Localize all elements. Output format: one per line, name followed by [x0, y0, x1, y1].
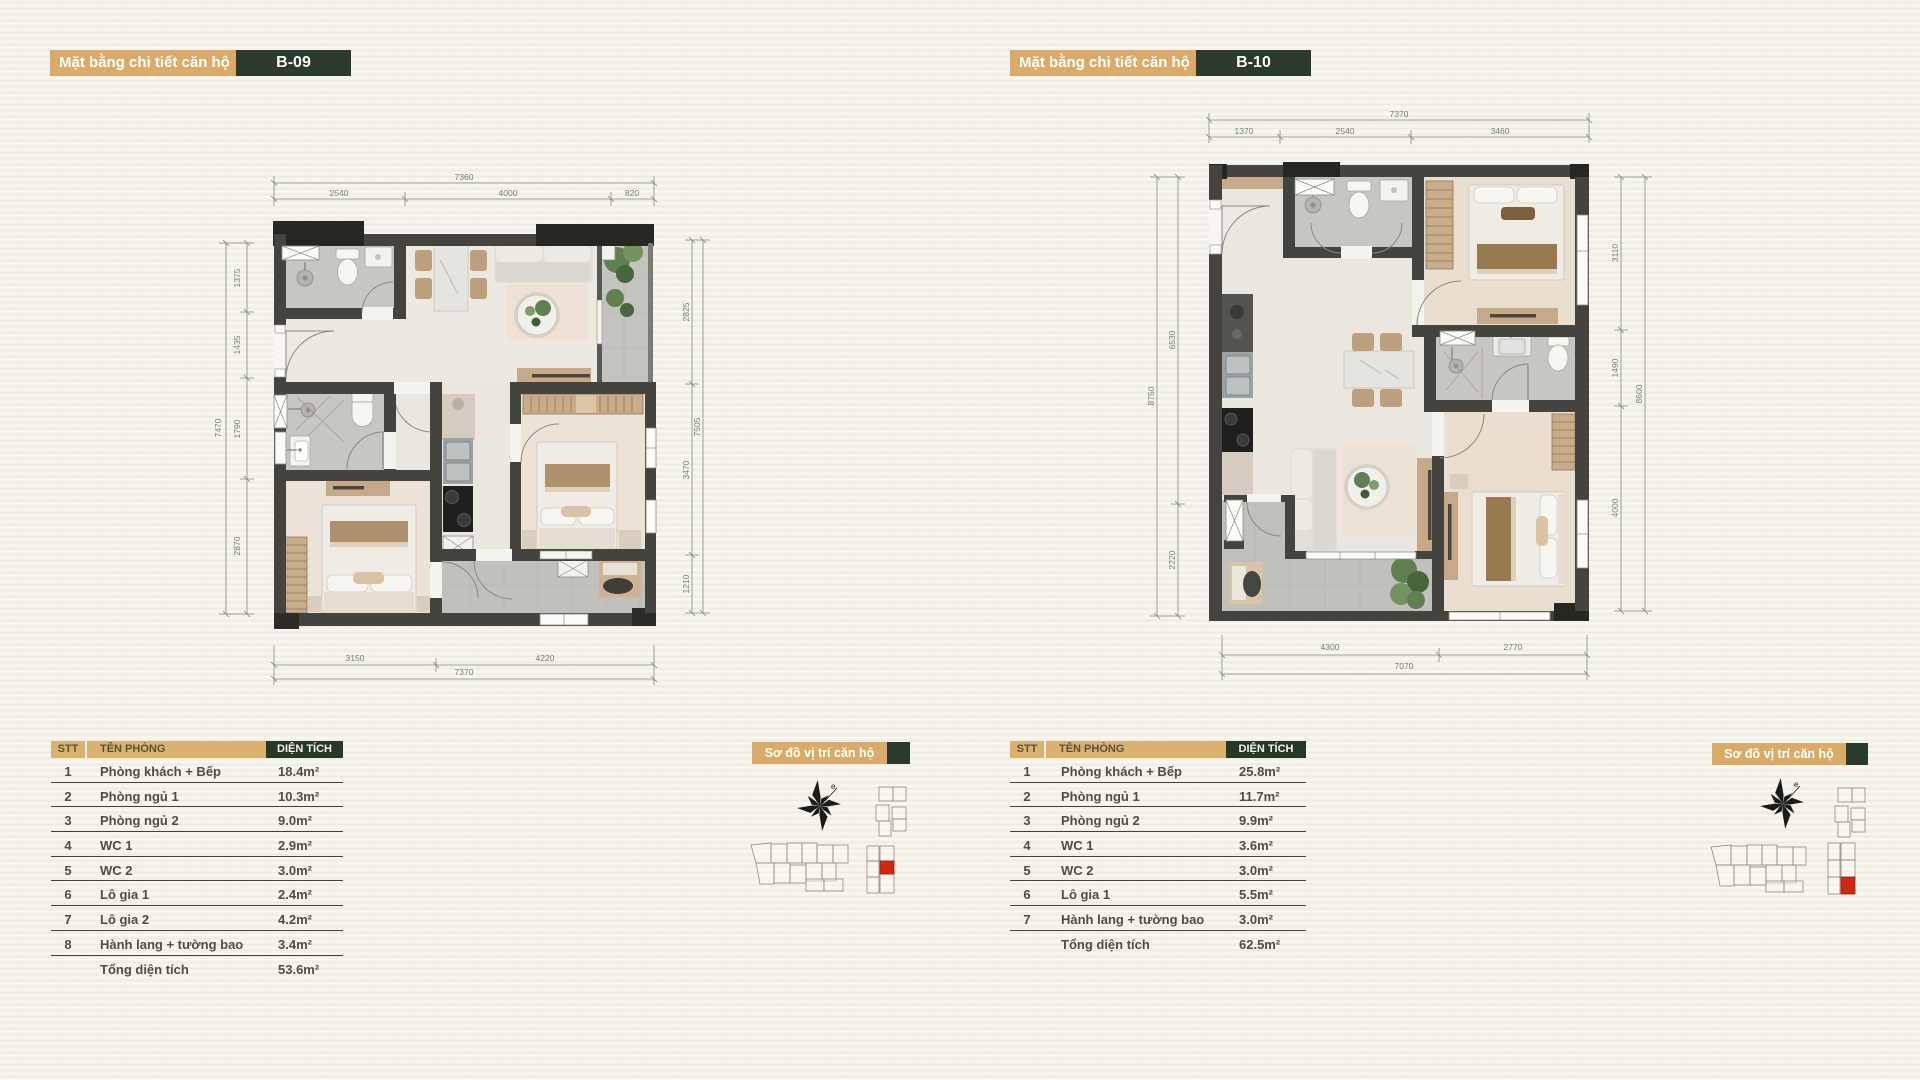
svg-text:8600: 8600: [1634, 384, 1644, 403]
svg-text:3460: 3460: [1491, 126, 1510, 136]
svg-text:4300: 4300: [1321, 642, 1340, 652]
svg-text:e: e: [1794, 780, 1799, 789]
svg-text:7370: 7370: [455, 667, 474, 677]
svg-text:4000: 4000: [1610, 498, 1620, 517]
svg-text:2220: 2220: [1167, 550, 1177, 569]
svg-text:2540: 2540: [330, 188, 349, 198]
svg-text:7360: 7360: [455, 172, 474, 182]
svg-text:3110: 3110: [1610, 244, 1620, 263]
svg-text:2770: 2770: [1504, 642, 1523, 652]
svg-text:1370: 1370: [1235, 126, 1254, 136]
svg-text:2825: 2825: [681, 302, 691, 321]
svg-text:e: e: [831, 782, 836, 791]
svg-text:8750: 8750: [1146, 386, 1156, 405]
svg-text:7470: 7470: [213, 418, 223, 437]
svg-text:2540: 2540: [1336, 126, 1355, 136]
svg-text:2870: 2870: [232, 536, 242, 555]
svg-text:4220: 4220: [536, 653, 555, 663]
svg-text:3150: 3150: [346, 653, 365, 663]
svg-text:1210: 1210: [681, 574, 691, 593]
svg-text:7370: 7370: [1390, 109, 1409, 119]
svg-text:7070: 7070: [1395, 661, 1414, 671]
svg-text:6530: 6530: [1167, 330, 1177, 349]
svg-text:1435: 1435: [232, 335, 242, 354]
svg-text:820: 820: [625, 188, 639, 198]
svg-text:1490: 1490: [1610, 358, 1620, 377]
svg-text:7505: 7505: [692, 417, 702, 436]
svg-text:3470: 3470: [681, 460, 691, 479]
svg-text:1790: 1790: [232, 419, 242, 438]
svg-text:4000: 4000: [499, 188, 518, 198]
svg-text:1375: 1375: [232, 268, 242, 287]
